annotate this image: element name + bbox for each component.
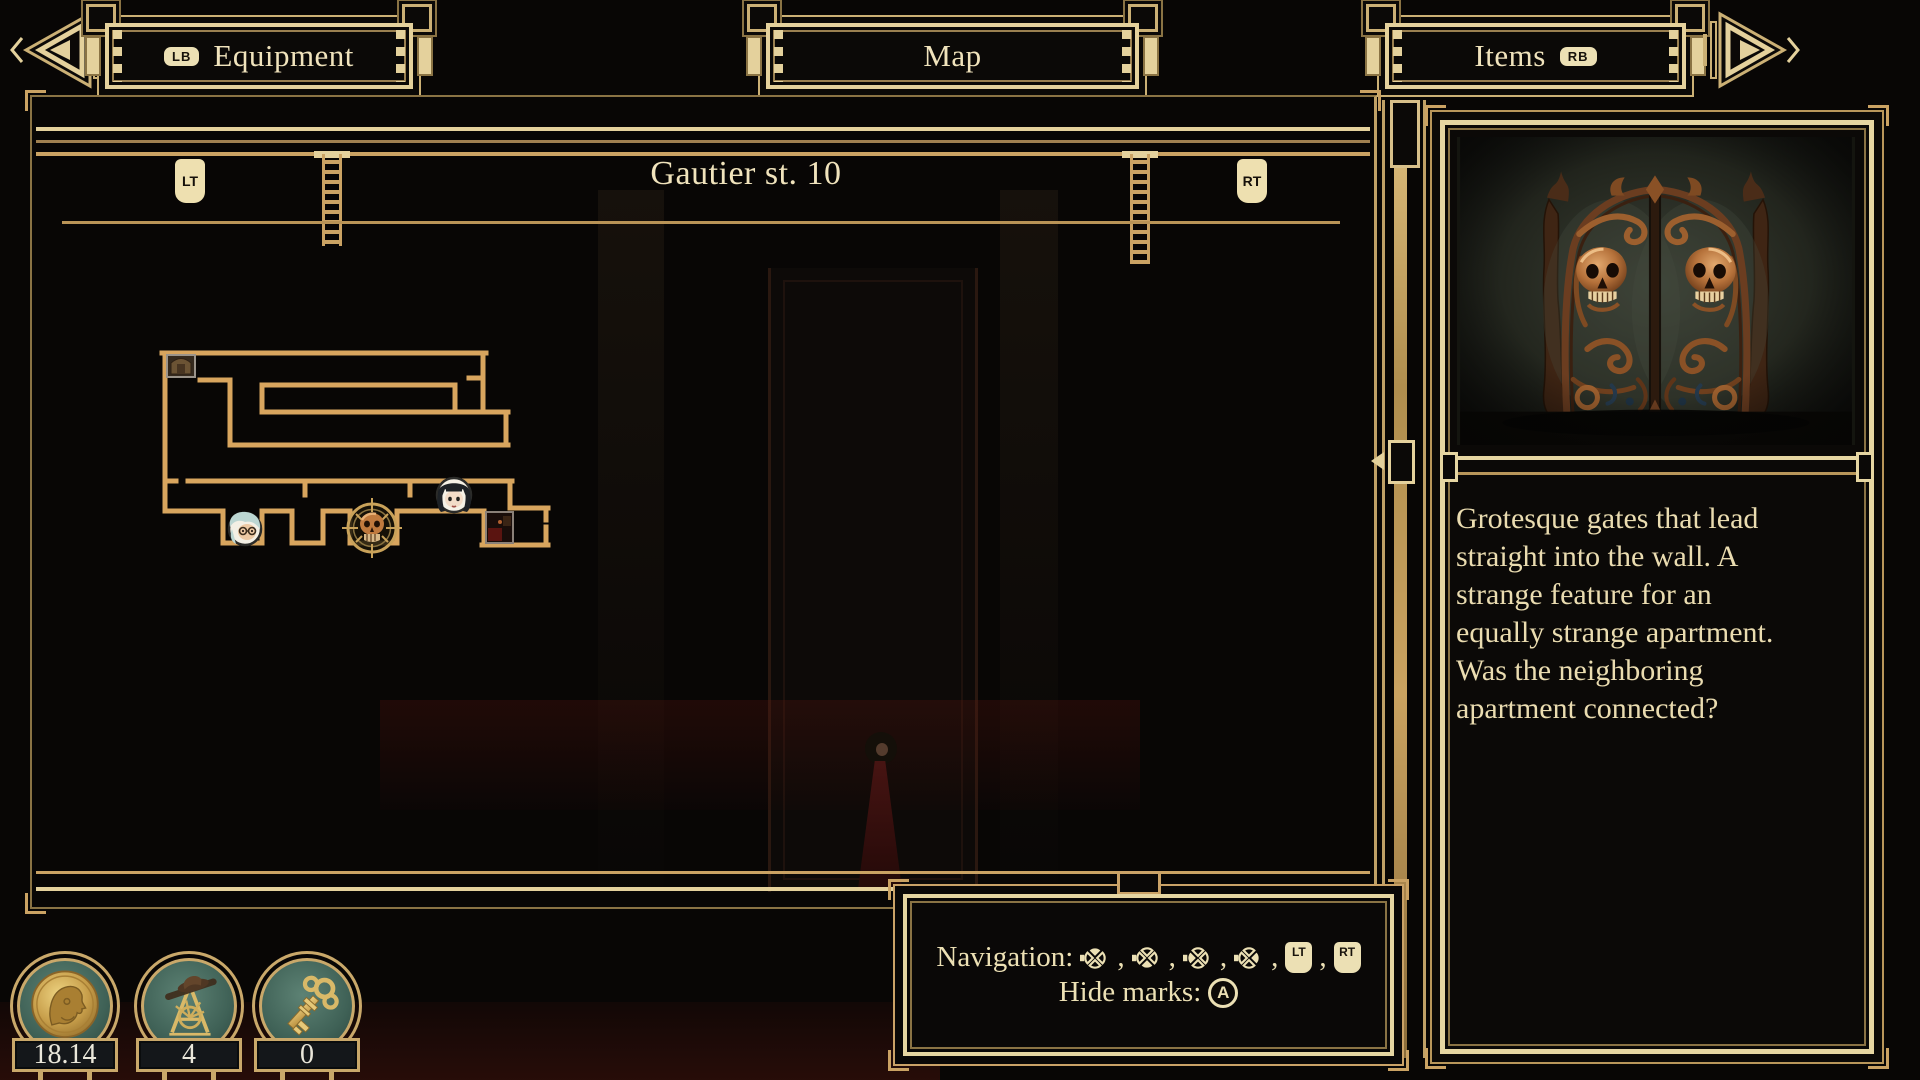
tab-map-label: Map <box>923 38 981 74</box>
description-line: apartment connected? <box>1456 690 1856 728</box>
separator-clamp-ornament <box>1388 440 1415 484</box>
rt-button-icon: RT <box>1334 942 1361 973</box>
resource-keys: 0 <box>252 958 362 1080</box>
badge-legs <box>254 1072 360 1080</box>
resource-money: 18.14 <box>10 958 120 1080</box>
separator: , <box>1117 941 1124 974</box>
player-portrait-mark[interactable] <box>437 478 471 512</box>
tab-equipment-label-row: LB Equipment <box>99 17 419 95</box>
furniture-thumbnail-mark[interactable] <box>167 355 195 377</box>
corner-ornament <box>25 893 46 914</box>
money-value: 18.14 <box>12 1038 118 1072</box>
lb-shoulder-icon: LB <box>164 47 199 66</box>
room-thumbnail-mark[interactable] <box>486 512 513 543</box>
separator-top-ornament <box>1390 100 1420 168</box>
controls-hint-panel: Navigation: , , <box>893 884 1404 1066</box>
a-button-icon: A <box>1208 978 1238 1008</box>
item-image <box>1457 137 1855 445</box>
tab-items-label: Items <box>1474 38 1545 74</box>
item-divider <box>1448 456 1866 475</box>
description-line: strange feature for an <box>1456 576 1856 614</box>
game-screen: { "top_bar": { "prev_tab": { "shortcut":… <box>0 0 1920 1080</box>
dpad-up-icon <box>1080 943 1110 973</box>
description-line: straight into the wall. A <box>1456 538 1856 576</box>
tab-equipment-label: Equipment <box>213 38 354 74</box>
left-arrow-icon <box>1371 452 1384 470</box>
top-band-ornament <box>36 127 1370 143</box>
description-line: equally strange apartment. <box>1456 614 1856 652</box>
tab-items-label-row: Items RB <box>1379 17 1692 95</box>
next-tab-arrow-icon[interactable] <box>1702 8 1802 92</box>
title-underline <box>62 221 1340 224</box>
tab-items[interactable]: Items RB <box>1377 15 1694 97</box>
side-ornament <box>417 36 433 76</box>
corner-ornament <box>1360 90 1381 111</box>
badge-legs <box>12 1072 118 1080</box>
item-description: Grotesque gates that lead straight into … <box>1456 500 1856 728</box>
separator: , <box>1220 941 1227 974</box>
separator-line <box>1423 100 1426 1058</box>
map-canvas[interactable] <box>120 330 560 570</box>
tab-map-label-row: Map <box>760 17 1145 95</box>
hide-marks-label: Hide marks: <box>1059 976 1202 1009</box>
separator: , <box>1319 941 1326 974</box>
top-tab-ornament <box>1117 871 1161 895</box>
description-line: Was the neighboring <box>1456 652 1856 690</box>
elderly-woman-portrait-mark[interactable] <box>229 512 261 545</box>
side-ornament <box>1143 36 1159 76</box>
item-detail-panel: Grotesque gates that lead straight into … <box>1430 110 1884 1064</box>
corner-ornament <box>25 90 46 111</box>
dpad-down-icon <box>1132 943 1162 973</box>
tab-map[interactable]: Map <box>758 15 1147 97</box>
badge-legs <box>136 1072 242 1080</box>
keys-value: 0 <box>254 1038 360 1072</box>
lt-trigger-icon[interactable]: LT <box>175 159 205 203</box>
navigation-hint-row: Navigation: , , <box>936 941 1360 974</box>
rt-trigger-icon[interactable]: RT <box>1237 159 1267 203</box>
skull-selected-mark[interactable] <box>342 498 402 558</box>
description-line: Grotesque gates that lead <box>1456 500 1856 538</box>
lt-button-icon: LT <box>1285 942 1312 973</box>
map-location-title: Gautier st. 10 <box>75 155 1417 193</box>
dpad-left-icon <box>1183 943 1213 973</box>
separator: , <box>1271 941 1278 974</box>
hide-marks-hint-row: Hide marks: A <box>1059 976 1239 1009</box>
resource-drafting-tools: 4 <box>134 958 244 1080</box>
rb-shoulder-icon: RB <box>1560 47 1597 66</box>
navigation-label: Navigation: <box>936 941 1073 974</box>
dpad-right-icon <box>1234 943 1264 973</box>
separator: , <box>1169 941 1176 974</box>
grotesque-gates-illustration <box>1457 137 1855 445</box>
drafting-tools-value: 4 <box>136 1038 242 1072</box>
tab-equipment[interactable]: LB Equipment <box>97 15 421 97</box>
